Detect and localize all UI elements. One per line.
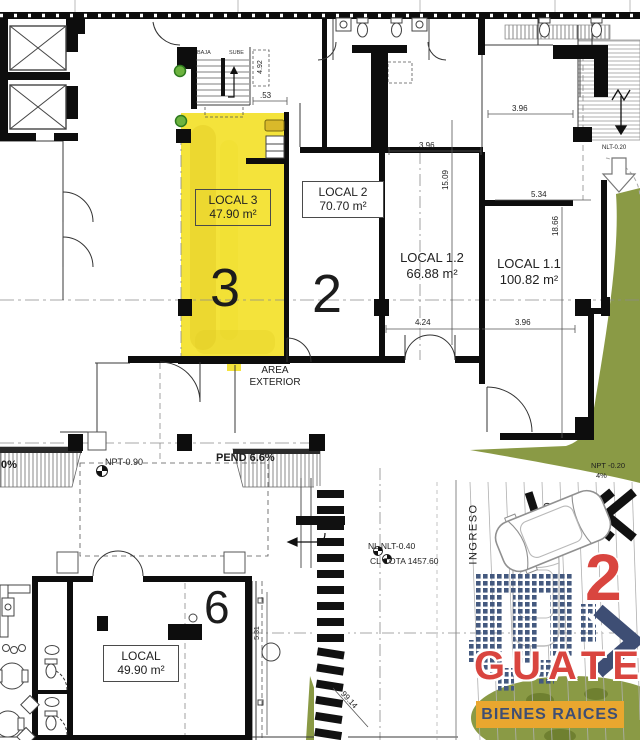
local12-label: LOCAL 1.2 66.88 m²: [392, 250, 472, 281]
npt-street-label: NPT-0.90: [105, 457, 143, 468]
nlt-upper-label: NLT-0.20: [602, 145, 626, 152]
sink-icon: [45, 698, 59, 707]
pend-main-label: PEND 6.6%: [216, 452, 275, 465]
local3-name: LOCAL 3: [200, 193, 266, 207]
ramp-slope-label: 4%: [596, 471, 607, 480]
local3-label: LOCAL 3 47.90 m²: [195, 189, 271, 226]
toilet-icon: [391, 18, 402, 37]
dim-mid-top: 3.96: [419, 141, 435, 151]
local6-number: 6: [204, 580, 230, 635]
dim-bottom-right: 3.96: [515, 318, 531, 328]
electrical-panel-icon: [266, 136, 284, 158]
nl-line-label: NL NLT-0.40: [368, 541, 415, 551]
logo-mark-2: 2: [585, 538, 622, 617]
local11-area: 100.82 m²: [487, 272, 571, 288]
stair-sube-label: SUBE: [229, 50, 244, 57]
area-exterior-label: AREA EXTERIOR: [238, 365, 312, 389]
local2-label: LOCAL 2 70.70 m²: [302, 181, 384, 218]
toilet-icon: [539, 18, 550, 37]
local2-number: 2: [312, 262, 342, 327]
logo-brand: GUATE: [474, 642, 640, 690]
local2-area: 70.70 m²: [307, 199, 379, 213]
stair-baja-label: BAJA: [197, 50, 211, 57]
plate-icon: [19, 645, 26, 652]
dim-upper-right: 5.34: [531, 190, 547, 200]
pend-left-label: 0%: [1, 459, 17, 472]
logo-tagline: BIENES RAICES: [481, 705, 618, 724]
water-heater-icon: [265, 120, 284, 131]
toilet-icon: [591, 18, 602, 37]
dim-top-right: 3.96: [512, 104, 528, 114]
plan-linework: INGRESO: [0, 0, 640, 740]
local6-area: 49.90 m²: [108, 663, 174, 677]
local12-name: LOCAL 1.2: [392, 250, 472, 266]
table-icon: [0, 663, 28, 689]
local3-area: 47.90 m²: [200, 207, 266, 221]
local12-area: 66.88 m²: [392, 266, 472, 282]
sink-icon: [336, 18, 351, 31]
toilet-icon: [45, 659, 57, 678]
dim-mid-bottom: 4.24: [415, 318, 431, 328]
local6-name: LOCAL: [108, 649, 174, 663]
local11-name: LOCAL 1.1: [487, 256, 571, 272]
green-marker-icon: [175, 66, 186, 77]
local2-name: LOCAL 2: [307, 185, 379, 199]
plate-icon: [3, 645, 10, 652]
ingreso-label: INGRESO: [467, 503, 480, 564]
toilet-icon: [357, 18, 368, 37]
counter-icon: [0, 585, 30, 637]
sink-icon: [412, 18, 427, 31]
dim-local12-vert: 15.09: [441, 170, 451, 190]
npt-ramp-label: NPT -0.20: [591, 461, 625, 470]
stairs-icon: [196, 58, 249, 102]
dim-room6-vert: 5.31: [254, 626, 262, 640]
cl-line-label: CL COTA 1457.60: [370, 556, 439, 566]
logo-banner: BIENES RAICES: [476, 701, 624, 728]
sink-icon: [45, 646, 59, 655]
local11-label: LOCAL 1.1 100.82 m²: [487, 256, 571, 287]
floorplan-image: INGRESO: [0, 0, 640, 740]
local6-label: LOCAL 49.90 m²: [103, 645, 179, 682]
local3-number: 3: [210, 256, 240, 321]
toilet-icon: [45, 711, 57, 730]
plate-icon: [11, 647, 18, 654]
dim-stair-vert: 4.92: [257, 60, 265, 74]
green-marker-icon: [176, 116, 187, 127]
dim-right-vert: 18.66: [551, 216, 561, 236]
ramp-down-arrow-icon: [603, 158, 635, 192]
dim-stair-clear: .53: [260, 91, 271, 101]
